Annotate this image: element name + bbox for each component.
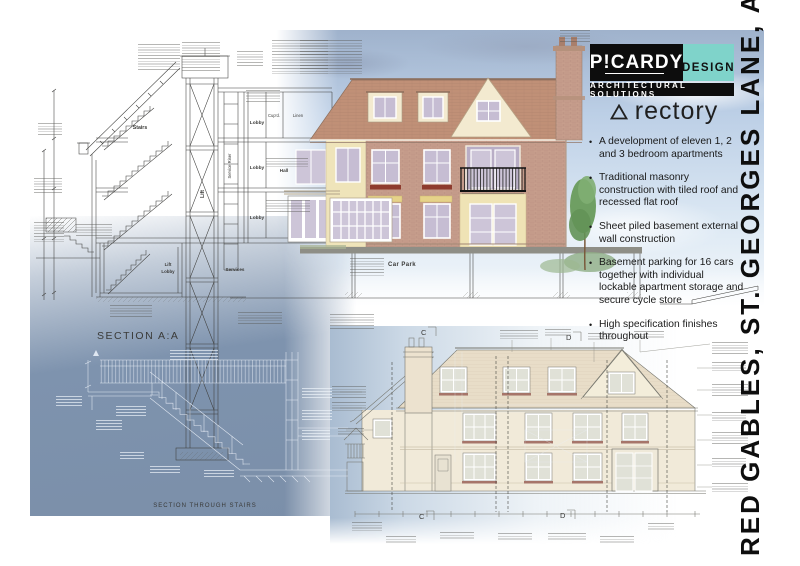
label-car-park: Car Park bbox=[388, 262, 416, 268]
brand-tagline: ARCHITECTURAL SOLUTIONS bbox=[590, 83, 734, 96]
label-lift: Lift bbox=[200, 190, 206, 198]
feature-bullet: High specification finishes throughout bbox=[588, 319, 744, 344]
annotation-note bbox=[120, 452, 144, 461]
annotation-note bbox=[34, 222, 64, 242]
section-aa-title: SECTION A:A bbox=[97, 330, 179, 342]
presentation-board: Stairs Lift Service Riser Lobby Lobby Lo… bbox=[0, 0, 800, 566]
annotation-note bbox=[116, 406, 146, 418]
annotation-note bbox=[266, 158, 308, 168]
feature-list: A development of eleven 1, 2 and 3 bedro… bbox=[588, 136, 744, 355]
label-lift-lobby-line2: Lobby bbox=[161, 269, 175, 274]
triangle-logo-icon bbox=[610, 104, 628, 120]
label-lobby-1f: Lobby bbox=[250, 165, 265, 171]
project-title: rectory bbox=[588, 97, 740, 126]
balcony bbox=[460, 146, 526, 194]
chimney bbox=[553, 37, 585, 140]
annotation-note bbox=[266, 200, 310, 212]
annotation-note bbox=[352, 522, 382, 532]
label-stairs: Stairs bbox=[133, 125, 148, 131]
annotation-note bbox=[237, 51, 263, 66]
annotation-note bbox=[560, 30, 590, 43]
annotation-note bbox=[332, 386, 366, 398]
annotation-note bbox=[300, 40, 362, 74]
annotation-note bbox=[500, 330, 538, 339]
section-marker-c-top: C bbox=[421, 328, 427, 337]
annotation-note bbox=[600, 536, 634, 544]
label-lobby-gf: Lobby bbox=[250, 215, 265, 221]
label-lift-lobby-line1: Lift bbox=[165, 262, 172, 267]
brand-name-text: P!CARDY bbox=[590, 52, 684, 74]
site-address-vertical-title: RED GABLES, ST. GEORGES LANE, ASCOT bbox=[735, 10, 769, 556]
logo-block: P!CARDY DESIGN ARCHITECTURAL SOLUTIONS bbox=[590, 44, 734, 96]
brand-design: DESIGN bbox=[683, 44, 734, 81]
annotation-note bbox=[182, 42, 220, 72]
annotation-note bbox=[302, 388, 332, 398]
label-hall: Hall bbox=[280, 168, 288, 173]
section-marker-c-bottom: C bbox=[419, 512, 425, 521]
feature-bullet: Traditional masonry construction with ti… bbox=[588, 172, 744, 210]
annotation-note bbox=[386, 536, 416, 544]
brand-tagline-text: ARCHITECTURAL SOLUTIONS bbox=[590, 81, 734, 99]
feature-bullet: Sheet piled basement external wall const… bbox=[588, 221, 744, 246]
feature-bullet: A development of eleven 1, 2 and 3 bedro… bbox=[588, 136, 744, 161]
annotation-note bbox=[498, 533, 532, 541]
feature-bullet: Basement parking for 16 cars together wi… bbox=[588, 257, 744, 307]
label-linen: Linen bbox=[293, 113, 304, 118]
logo-underline bbox=[605, 73, 665, 74]
label-services: Services bbox=[226, 267, 245, 272]
annotation-note bbox=[246, 90, 280, 102]
annotation-note bbox=[332, 402, 366, 412]
label-lobby-2f: Lobby bbox=[250, 120, 265, 126]
annotation-note bbox=[150, 466, 180, 475]
annotation-note bbox=[238, 312, 282, 326]
annotation-note bbox=[648, 523, 674, 531]
annotation-note bbox=[38, 123, 62, 135]
stairs-section-title: SECTION THROUGH STAIRS bbox=[153, 503, 256, 509]
annotation-note bbox=[96, 420, 122, 430]
annotation-note bbox=[440, 532, 474, 540]
annotation-note bbox=[110, 305, 152, 318]
annotation-note bbox=[76, 224, 112, 238]
annotation-note bbox=[204, 470, 234, 479]
annotation-note bbox=[56, 396, 82, 408]
elevation-drawing: C C D D bbox=[340, 327, 712, 521]
annotation-note bbox=[302, 430, 330, 440]
annotation-note bbox=[545, 329, 571, 337]
annotation-note bbox=[302, 410, 332, 420]
label-cupboard: Cup'd. bbox=[268, 113, 280, 118]
annotation-note bbox=[350, 258, 384, 276]
project-title-text: rectory bbox=[635, 97, 718, 126]
annotation-note bbox=[548, 533, 586, 541]
annotation-note bbox=[34, 178, 62, 194]
section-marker-d-bottom: D bbox=[560, 511, 566, 520]
label-service-riser: Service Riser bbox=[227, 153, 232, 179]
brand-design-text: DESIGN bbox=[682, 62, 735, 74]
annotation-note bbox=[338, 428, 364, 436]
annotation-note bbox=[138, 44, 180, 72]
brand-name: P!CARDY bbox=[590, 44, 683, 81]
annotation-note bbox=[170, 350, 218, 360]
annotation-note bbox=[330, 314, 374, 330]
